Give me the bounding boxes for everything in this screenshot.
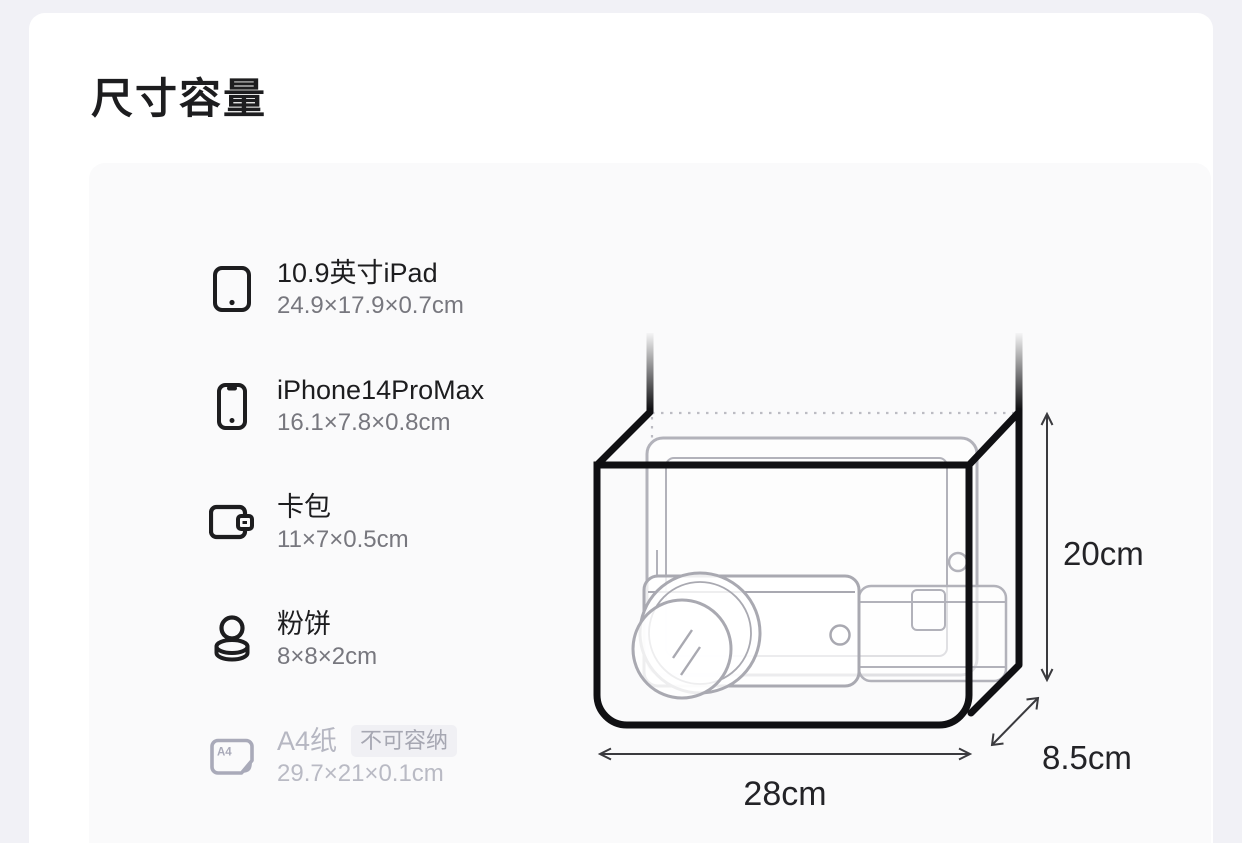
height-dimension-label: 20cm bbox=[1063, 535, 1144, 572]
iphone-icon bbox=[209, 383, 255, 430]
a4-paper-icon: A4 bbox=[209, 738, 255, 776]
item-name: iPhone14ProMax bbox=[277, 374, 484, 406]
item-dimensions: 11×7×0.5cm bbox=[277, 525, 409, 555]
bag-dimension-diagram: 28cm 20cm 8.5cm bbox=[569, 313, 1189, 833]
depth-dimension-label: 8.5cm bbox=[1042, 739, 1132, 776]
a4-icon-label: A4 bbox=[217, 747, 232, 759]
section-title: 尺寸容量 bbox=[91, 65, 267, 126]
item-name: 10.9英寸iPad bbox=[277, 257, 464, 289]
list-item-wallet: 卡包 11×7×0.5cm bbox=[209, 490, 409, 556]
list-item-ipad: 10.9英寸iPad 24.9×17.9×0.7cm bbox=[209, 256, 464, 322]
not-fit-badge: 不可容纳 bbox=[351, 725, 457, 757]
item-name: 卡包 bbox=[277, 491, 409, 523]
item-dimensions: 24.9×17.9×0.7cm bbox=[277, 291, 464, 321]
item-dimensions: 29.7×21×0.1cm bbox=[277, 759, 457, 789]
list-item-iphone: iPhone14ProMax 16.1×7.8×0.8cm bbox=[209, 373, 484, 439]
list-item-a4-paper: A4 A4纸 不可容纳 29.7×21×0.1cm bbox=[209, 724, 457, 790]
item-name: 粉饼 bbox=[277, 608, 377, 640]
width-dimension-label: 28cm bbox=[743, 775, 826, 813]
wallet-icon bbox=[209, 504, 255, 542]
item-name: A4纸 不可容纳 bbox=[277, 725, 457, 757]
compact-icon bbox=[209, 614, 255, 666]
list-item-compact: 粉饼 8×8×2cm bbox=[209, 607, 377, 673]
ghost-iphone bbox=[859, 586, 1006, 681]
ipad-icon bbox=[209, 266, 255, 312]
content-card: 尺寸容量 10.9英寸iPad 24.9×17.9×0.7cm bbox=[29, 13, 1213, 843]
item-dimensions: 8×8×2cm bbox=[277, 642, 377, 672]
item-dimensions: 16.1×7.8×0.8cm bbox=[277, 408, 484, 438]
